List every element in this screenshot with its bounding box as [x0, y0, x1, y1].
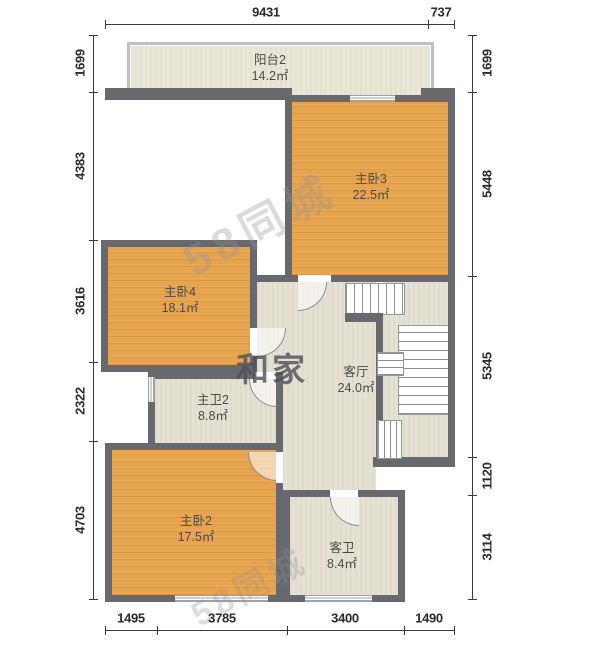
dim-tick: [89, 240, 98, 241]
stairs-upper-flight: [345, 283, 405, 315]
dim-left-3: 2322: [73, 387, 88, 415]
dim-tick: [454, 626, 455, 635]
dim-tick: [468, 495, 477, 496]
wall-guestbath-right: [398, 490, 405, 602]
dim-tick: [157, 626, 158, 635]
dim-tick: [89, 92, 98, 93]
wall-master4-bottom: [101, 365, 257, 372]
dim-bottom-2: 3400: [331, 611, 359, 626]
room-label-guestbath: 客卫 8.4㎡: [327, 540, 357, 573]
room-label-balcony2: 阳台2 14.2㎡: [252, 52, 289, 85]
dim-tick: [287, 626, 288, 635]
dim-line-left: [93, 35, 94, 600]
stairs-break-marker: [377, 352, 404, 376]
closet-under-stairs: [377, 420, 402, 459]
room-name: 阳台2: [252, 52, 289, 68]
dim-right-3: 1120: [480, 462, 495, 489]
wall-master2-right-b: [276, 483, 283, 602]
dim-tick: [468, 276, 477, 277]
dim-top-1: 737: [431, 5, 452, 20]
dim-tick: [454, 20, 455, 29]
wall-master3-top-b: [395, 95, 448, 102]
dim-bottom-0: 1495: [117, 611, 145, 626]
wall-master3-left: [285, 95, 292, 282]
dim-left-0: 1699: [73, 49, 88, 77]
room-name: 客厅: [338, 364, 375, 380]
dim-tick: [89, 441, 98, 442]
floorplan-canvas: 阳台2 14.2㎡ 主卧3 22.5㎡ 主卧4 18.1㎡ 主卫2 8.8㎡ 主…: [0, 0, 614, 659]
wall-guestbath-left: [283, 490, 290, 602]
room-name: 主卫2: [197, 392, 229, 408]
window-master2-bottom: [175, 595, 268, 602]
room-name: 主卧2: [178, 513, 215, 529]
room-name: 主卧4: [162, 284, 199, 300]
wall-master4-right-a: [250, 240, 257, 328]
room-name: 主卧3: [353, 171, 390, 187]
room-label-master4: 主卧4 18.1㎡: [162, 284, 199, 317]
room-label-hall: 客厅 24.0㎡: [338, 364, 375, 397]
stairs-lower-flight: [398, 325, 450, 415]
wall-hall-top-a: [250, 275, 298, 282]
dim-left-2: 3616: [73, 287, 88, 315]
wall-master2-top: [105, 443, 283, 450]
wall-master4-top: [101, 240, 257, 247]
dim-tick: [468, 457, 477, 458]
dim-right-4: 3114: [480, 533, 495, 560]
room-area: 18.1㎡: [162, 300, 199, 316]
dim-tick: [468, 35, 477, 36]
dim-tick: [89, 35, 98, 36]
window-guestbath-bottom: [305, 595, 372, 602]
room-area: 17.5㎡: [178, 529, 215, 545]
window-master3-balcony-door: [350, 95, 395, 102]
wall-balcony-bottom-left: [105, 88, 292, 100]
dim-top-0: 9431: [252, 5, 280, 20]
dim-tick: [468, 599, 477, 600]
room-area: 8.4㎡: [327, 556, 357, 572]
wall-master3-top-a: [292, 95, 350, 102]
dim-tick: [89, 362, 98, 363]
dim-left-4: 4703: [73, 506, 88, 534]
wall-masterbath2-top: [148, 372, 255, 379]
dim-tick: [404, 626, 405, 635]
window-masterbath2-left: [148, 377, 155, 402]
dim-line-top: [105, 24, 455, 25]
wall-master2-left: [105, 443, 112, 602]
door-gap-master4: [250, 328, 257, 356]
wall-master4-right-b: [250, 356, 257, 372]
dim-line-right: [472, 35, 473, 600]
wall-stairs-under: [345, 313, 383, 322]
dim-tick: [105, 20, 106, 29]
dim-tick: [105, 626, 106, 635]
room-label-master2: 主卧2 17.5㎡: [178, 513, 215, 546]
wall-master4-left: [101, 240, 108, 372]
door-gap-masterbath2: [255, 372, 276, 379]
door-gap-master2: [276, 452, 283, 483]
wall-guestbath-top-a: [283, 490, 330, 497]
dim-tick: [468, 92, 477, 93]
dim-tick: [89, 599, 98, 600]
dim-bottom-3: 1490: [415, 611, 443, 626]
wall-master2-right-a: [276, 443, 283, 452]
room-name: 客卫: [327, 540, 357, 556]
wall-hall-top-b: [331, 275, 455, 282]
door-gap-guestbath: [330, 490, 358, 497]
room-area: 22.5㎡: [353, 187, 390, 203]
dim-tick: [428, 20, 429, 29]
room-area: 14.2㎡: [252, 68, 289, 84]
dim-bottom-1: 3785: [208, 611, 236, 626]
room-label-master3: 主卧3 22.5㎡: [353, 171, 390, 204]
wall-masterbath2-right: [276, 372, 283, 450]
dim-right-0: 1699: [480, 49, 495, 77]
room-area: 8.8㎡: [197, 408, 229, 424]
door-gap-master3: [298, 275, 331, 282]
room-area: 24.0㎡: [338, 380, 375, 396]
dim-left-1: 4383: [73, 152, 88, 180]
room-label-masterbath2: 主卫2 8.8㎡: [197, 392, 229, 425]
dim-right-1: 5448: [480, 170, 495, 198]
dim-right-2: 5345: [480, 352, 495, 380]
